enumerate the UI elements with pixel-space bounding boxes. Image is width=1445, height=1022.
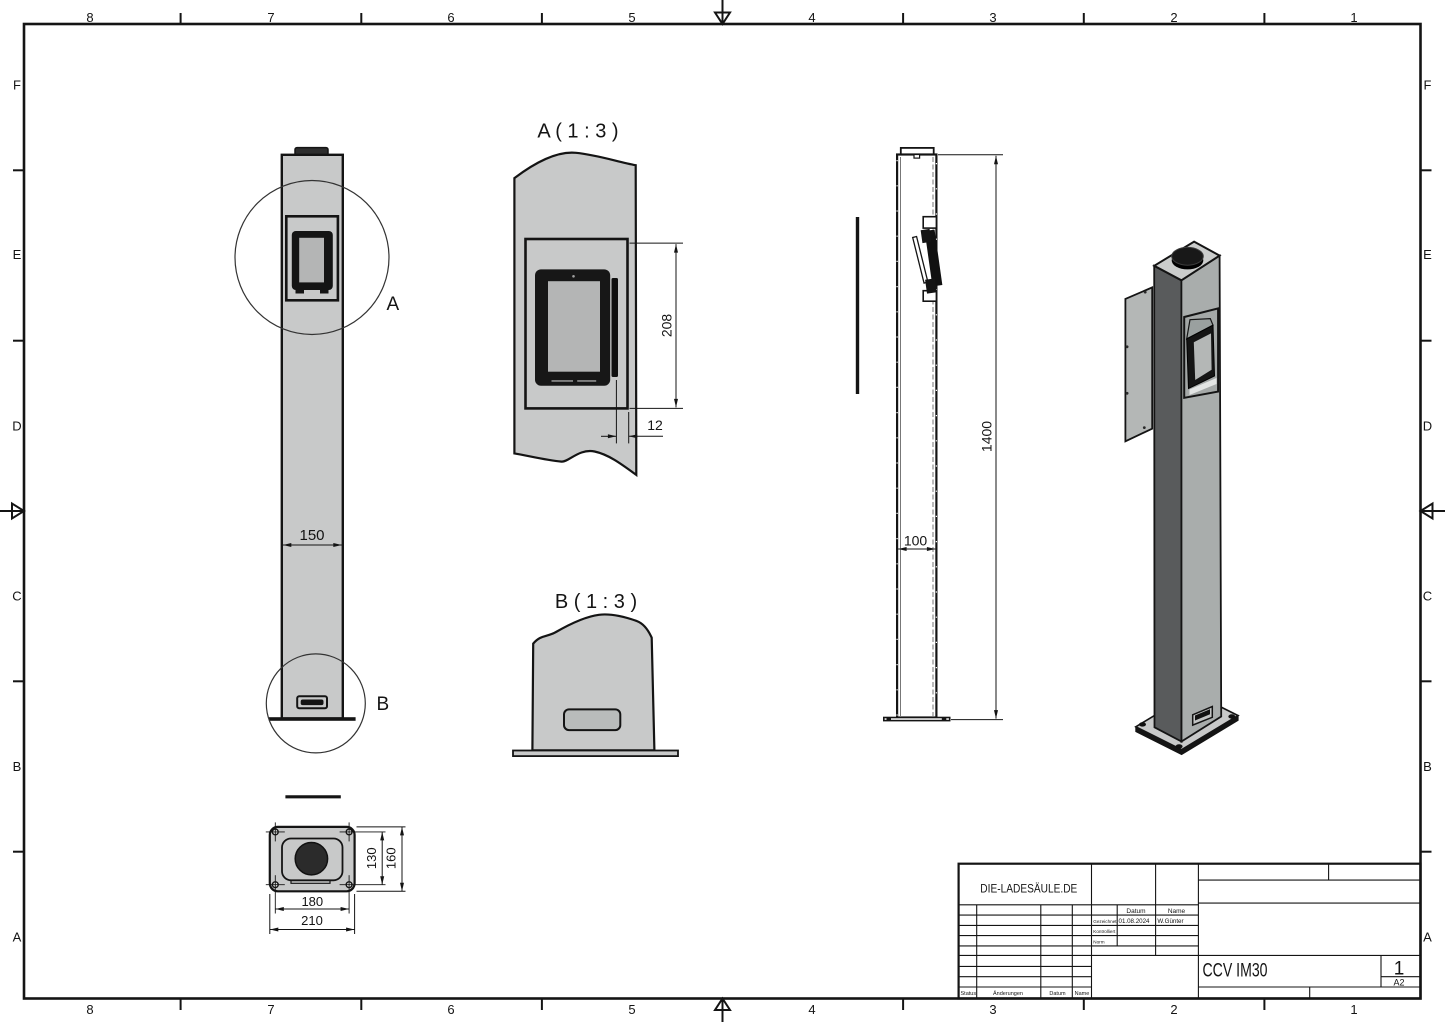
svg-text:Gezeichnet: Gezeichnet — [1093, 919, 1117, 924]
svg-text:1: 1 — [1350, 1002, 1357, 1017]
svg-text:Status: Status — [961, 991, 977, 997]
svg-text:150: 150 — [299, 527, 324, 544]
svg-text:F: F — [13, 78, 21, 93]
svg-text:D: D — [1423, 419, 1432, 434]
svg-text:D: D — [12, 419, 21, 434]
svg-text:F: F — [1424, 78, 1432, 93]
svg-text:1: 1 — [1394, 959, 1405, 980]
svg-text:100: 100 — [904, 533, 928, 549]
svg-text:4: 4 — [808, 1002, 815, 1017]
svg-text:CCV IM30: CCV IM30 — [1203, 961, 1268, 982]
svg-text:8: 8 — [86, 10, 93, 25]
svg-text:Norm: Norm — [1093, 940, 1104, 945]
svg-text:C: C — [12, 589, 21, 604]
svg-text:7: 7 — [267, 1002, 274, 1017]
svg-text:B: B — [1423, 759, 1432, 774]
svg-text:W.Günter: W.Günter — [1157, 918, 1183, 925]
svg-text:Datum: Datum — [1126, 908, 1145, 915]
svg-text:A ( 1 : 3 ): A ( 1 : 3 ) — [537, 121, 618, 143]
svg-text:7: 7 — [267, 10, 274, 25]
svg-text:5: 5 — [628, 10, 635, 25]
svg-text:1: 1 — [1350, 10, 1357, 25]
svg-text:B: B — [13, 759, 22, 774]
svg-text:2: 2 — [1170, 10, 1177, 25]
svg-text:B ( 1 : 3 ): B ( 1 : 3 ) — [555, 591, 637, 613]
svg-text:130: 130 — [364, 847, 379, 869]
svg-text:6: 6 — [447, 10, 454, 25]
svg-text:Name: Name — [1075, 991, 1090, 997]
svg-text:C: C — [1423, 589, 1432, 604]
svg-text:2: 2 — [1170, 1002, 1177, 1017]
svg-text:3: 3 — [989, 1002, 996, 1017]
svg-text:210: 210 — [301, 913, 323, 928]
svg-text:Datum: Datum — [1049, 991, 1066, 997]
svg-text:12: 12 — [647, 417, 663, 433]
svg-text:160: 160 — [383, 847, 398, 869]
svg-text:3: 3 — [989, 10, 996, 25]
svg-text:Kontrolliert: Kontrolliert — [1093, 929, 1116, 934]
svg-text:A: A — [387, 294, 400, 315]
svg-text:Änderungen: Änderungen — [993, 990, 1023, 997]
svg-text:Name: Name — [1168, 908, 1186, 915]
svg-text:180: 180 — [301, 894, 323, 909]
svg-text:A: A — [1423, 930, 1432, 945]
svg-text:1400: 1400 — [979, 421, 995, 452]
svg-text:B: B — [377, 694, 390, 715]
svg-text:4: 4 — [808, 10, 815, 25]
svg-text:8: 8 — [86, 1002, 93, 1017]
svg-text:DIE-LADESÄULE.DE: DIE-LADESÄULE.DE — [980, 884, 1077, 896]
svg-text:A2: A2 — [1393, 978, 1404, 988]
svg-text:A: A — [13, 930, 22, 945]
svg-text:5: 5 — [628, 1002, 635, 1017]
svg-text:208: 208 — [659, 314, 675, 338]
svg-text:E: E — [1423, 247, 1432, 262]
svg-text:E: E — [13, 247, 22, 262]
svg-text:6: 6 — [447, 1002, 454, 1017]
svg-text:01.08.2024: 01.08.2024 — [1119, 918, 1151, 925]
